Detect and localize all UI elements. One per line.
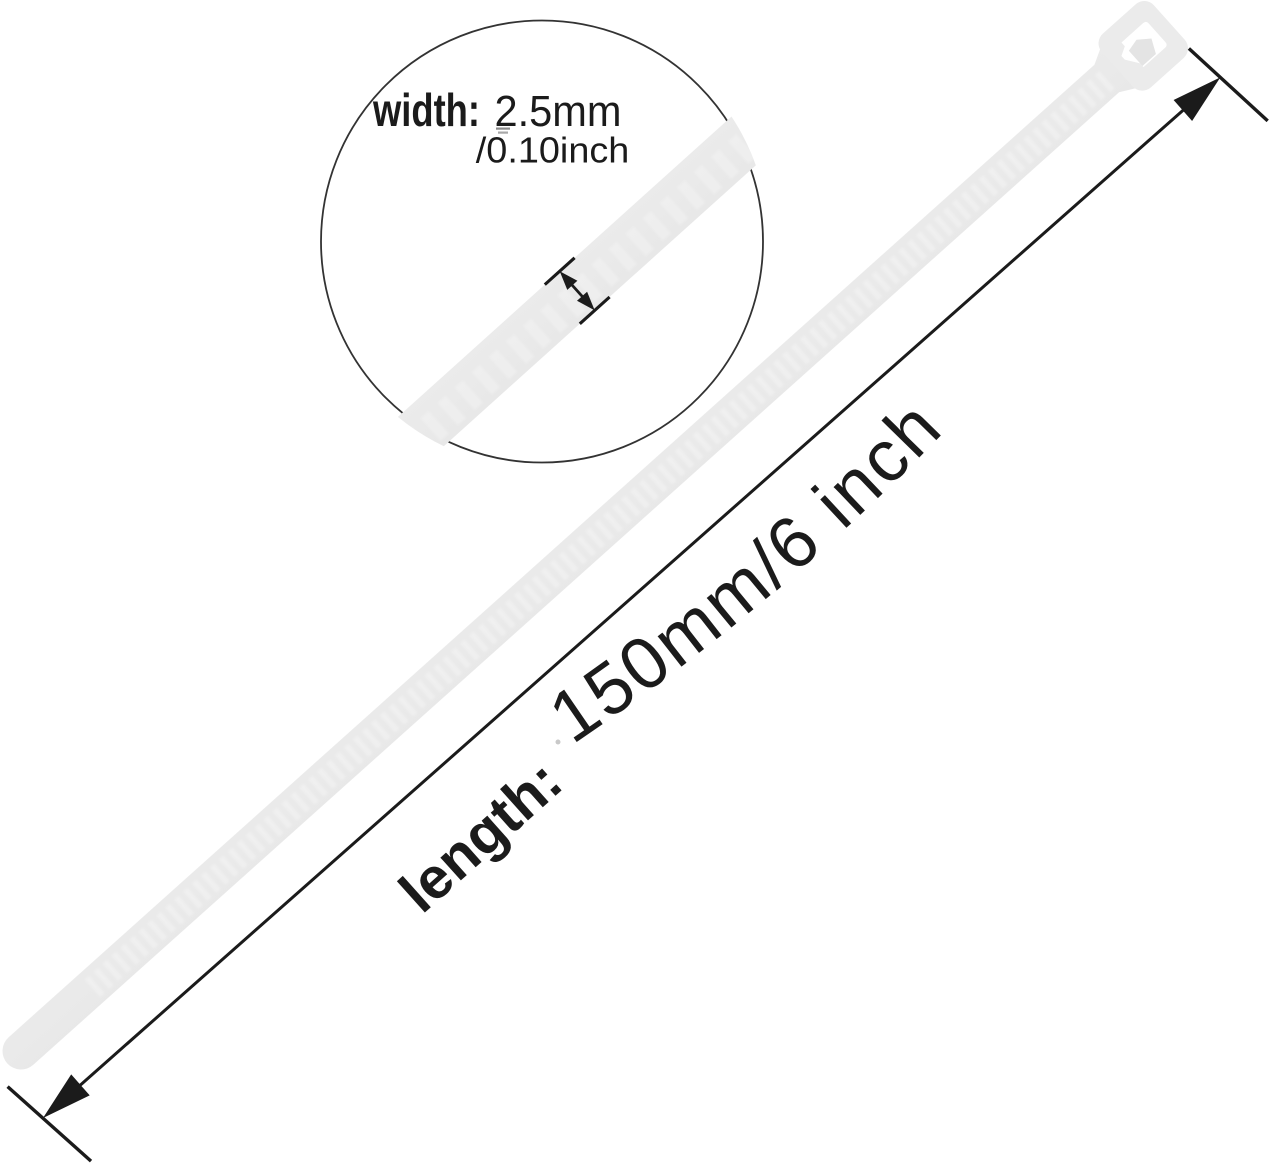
svg-text:width:: width: [372, 84, 480, 136]
svg-text:/0.10inch: /0.10inch [476, 130, 630, 171]
